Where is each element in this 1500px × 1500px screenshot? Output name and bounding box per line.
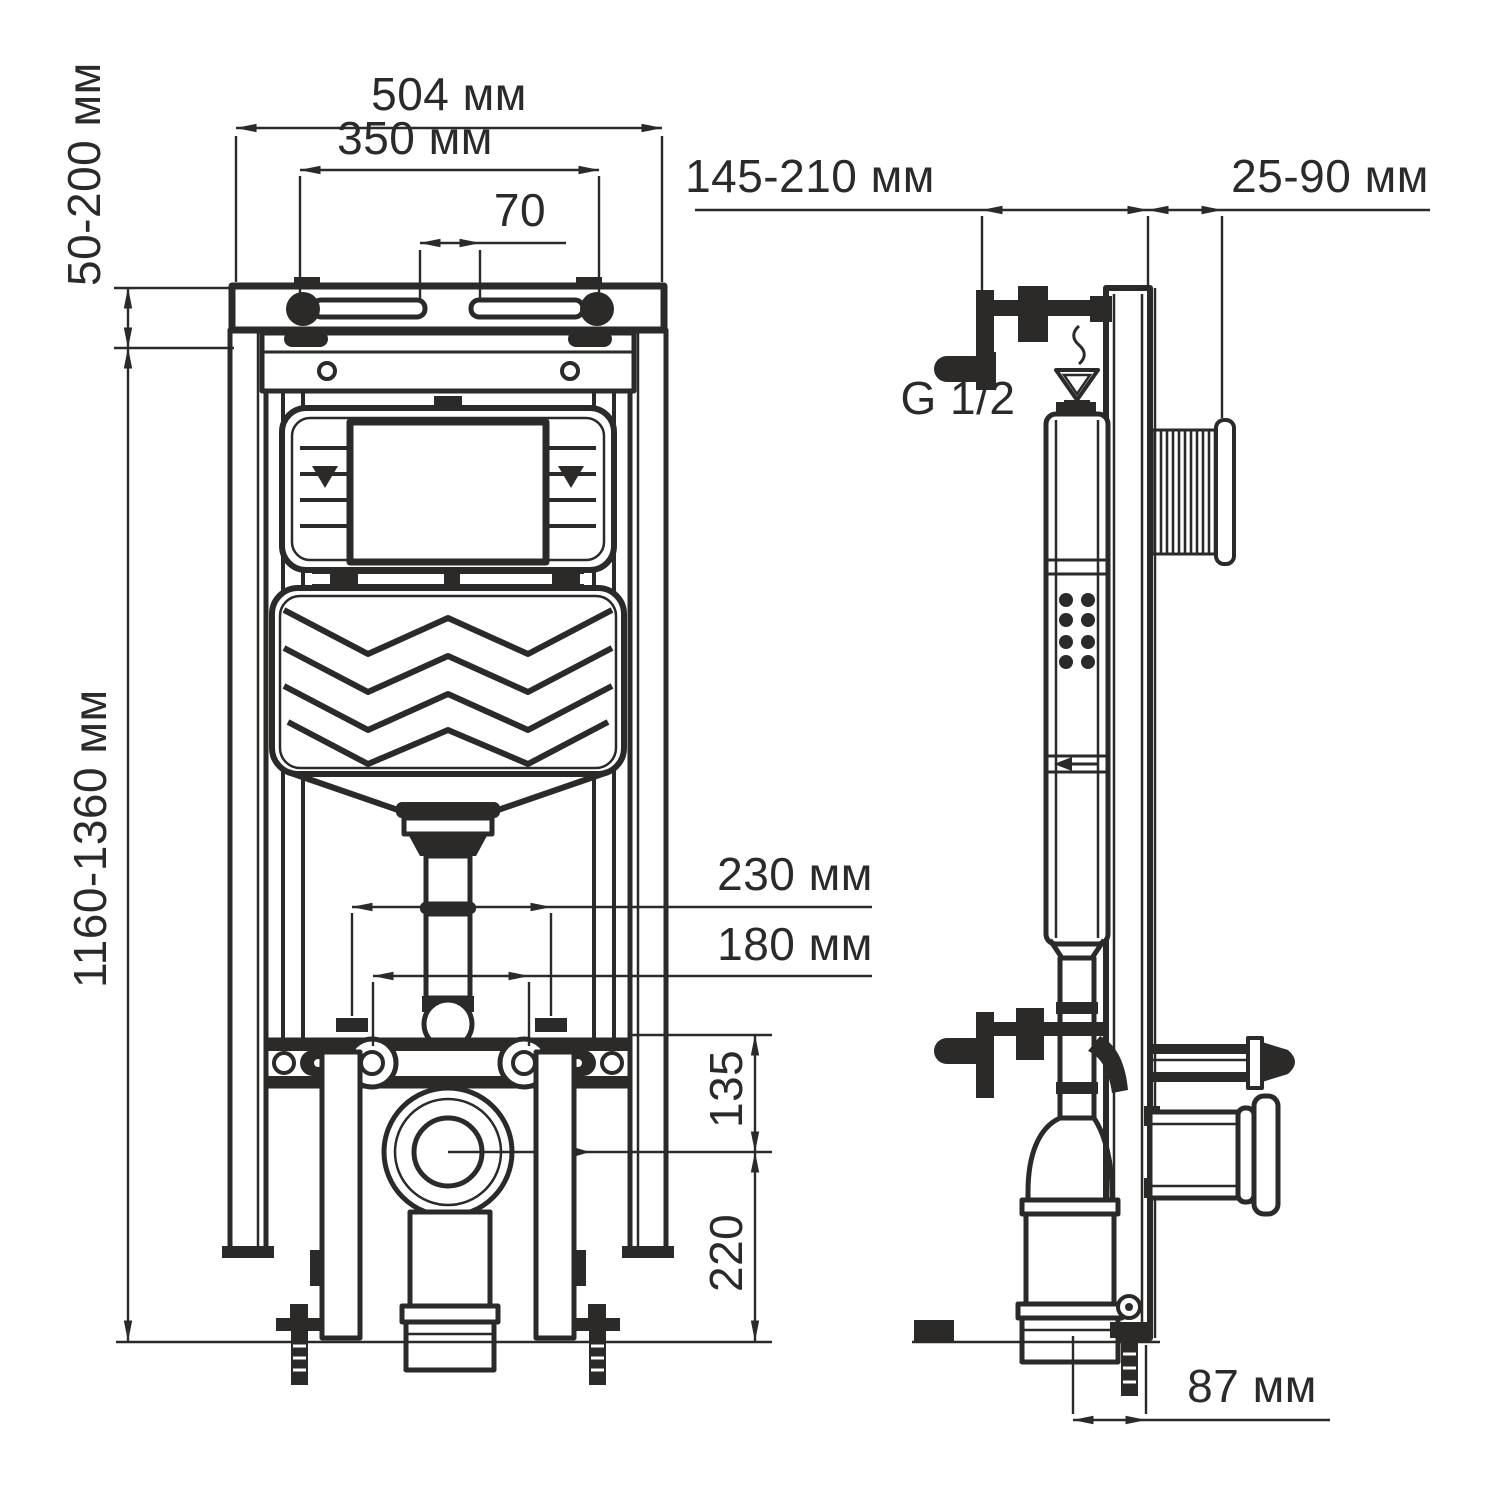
service-window	[350, 422, 546, 562]
side-foot	[914, 1320, 954, 1342]
drawing-svg: 504 мм 350 мм 70 50-200 мм 1160-1360 мм	[0, 0, 1500, 1500]
dim-slot-offset-label: 70	[494, 184, 546, 236]
outlet-flange-outer	[1254, 1096, 1278, 1214]
dim-button-depth-label: 25-90 мм	[1231, 150, 1429, 202]
dim-depth-adjust-label: 145-210 мм	[685, 150, 935, 202]
flush-pipe-side	[1056, 958, 1098, 1118]
hanger-slot-left	[313, 300, 425, 317]
upper-crossrail	[262, 331, 634, 391]
button-shaft-hatched	[1152, 430, 1216, 554]
hanger-bolt-right	[580, 292, 614, 326]
dim-waste-drop-label: 220	[700, 1214, 752, 1292]
dim-top-adjust-label: 50-200 мм	[58, 62, 110, 286]
hanger-slot-right	[471, 300, 583, 317]
dim-drain-offset-label: 87 мм	[1187, 1360, 1317, 1412]
dim-stud-outer-label: 230 мм	[717, 848, 873, 900]
rail-hole-right	[562, 363, 578, 379]
button-face-plate	[1216, 420, 1234, 564]
inlet-thread-label: G 1/2	[900, 372, 1015, 424]
waste-outlet-pipe	[1144, 1096, 1278, 1214]
valve-spout	[934, 1038, 988, 1064]
dim-hanger-spacing-label: 350 мм	[337, 112, 493, 164]
rail-hole-left	[319, 363, 335, 379]
flush-plate-panel	[282, 396, 614, 586]
hanger-bolt-left	[286, 292, 320, 326]
installation-drawing: 504 мм 350 мм 70 50-200 мм 1160-1360 мм	[0, 0, 1500, 1500]
dim-stud-inner-label: 180 мм	[717, 918, 873, 970]
stud-mount-left	[336, 1018, 368, 1032]
cistern-side	[1046, 402, 1108, 958]
dim-inlet-thread: G 1/2	[900, 372, 1015, 424]
dim-waste-center-label: 135	[700, 1050, 752, 1128]
flush-button-housing	[1152, 420, 1234, 564]
dim-frame-height-label: 1160-1360 мм	[64, 689, 116, 988]
stud-mount-right	[535, 1018, 567, 1032]
